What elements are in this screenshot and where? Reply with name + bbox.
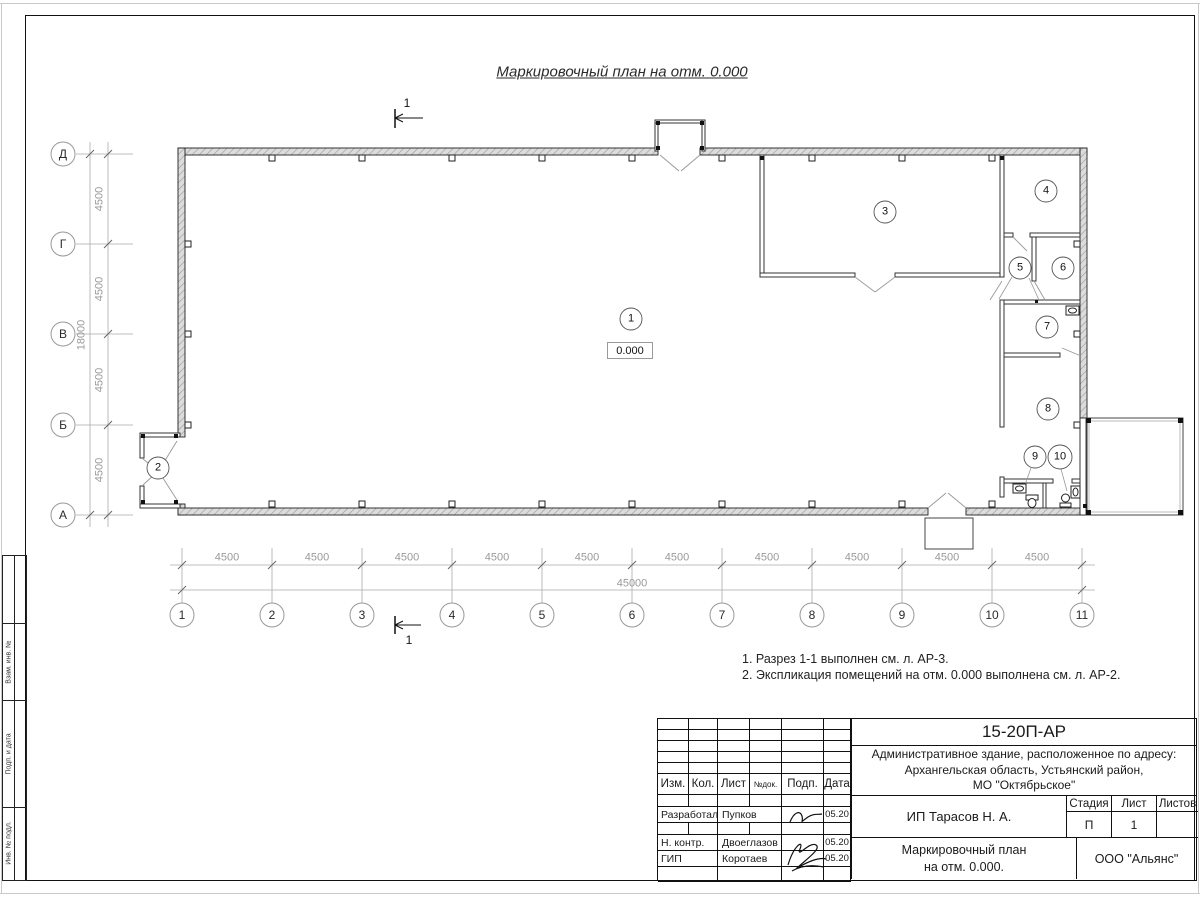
col-ndok: №док. <box>750 774 782 795</box>
dim-label: 4500 <box>1025 553 1049 564</box>
project-name: Административное здание, расположенное п… <box>851 746 1196 796</box>
margin-attribute-column: Взам. инв. № Подп. и дата Инв. № подл. <box>2 555 27 881</box>
room-tag: 1 <box>628 314 634 325</box>
dim-label: 4500 <box>215 553 239 564</box>
axis-label: 4 <box>449 609 456 621</box>
column-marks <box>185 155 1080 507</box>
margin-label: Инв. № подл. <box>6 821 13 865</box>
note-line: 1. Разрез 1-1 выполнен см. л. АР-3. <box>742 652 949 666</box>
dim-label: 4500 <box>665 553 689 564</box>
axis-label: 7 <box>719 609 726 621</box>
sheets-header: Листов <box>1156 796 1198 812</box>
axis-label: А <box>59 509 67 521</box>
stage-value: П <box>1066 812 1111 838</box>
sig-role: Разработал <box>658 807 718 823</box>
col-podp: Подп. <box>782 774 824 795</box>
axis-label: 1 <box>179 609 186 621</box>
axis-label: 9 <box>899 609 906 621</box>
axis-label: Б <box>59 419 67 431</box>
client-name: ИП Тарасов Н. А. <box>851 796 1066 838</box>
sig-name: Пупков <box>718 807 782 823</box>
margin-label: Подп. и дата <box>6 733 13 774</box>
axis-label: 5 <box>539 609 546 621</box>
drawing-title: Маркировочный план на отм. 0.000 <box>496 65 747 80</box>
room-tag: 6 <box>1060 263 1066 274</box>
project-line: МО "Октябрьское" <box>973 778 1075 794</box>
note-line: 2. Экспликация помещений на отм. 0.000 в… <box>742 668 1120 682</box>
sheets-value <box>1156 812 1198 838</box>
margin-label: Взам. инв. № <box>6 640 13 683</box>
project-line: Архангельская область, Устьянский район, <box>905 763 1144 779</box>
dim-label: 4500 <box>95 458 106 482</box>
ramp-and-porch <box>925 418 1183 549</box>
dim-label: 4500 <box>755 553 779 564</box>
dim-label: 4500 <box>935 553 959 564</box>
sheet-value: 1 <box>1111 812 1156 838</box>
sig-role: ГИП <box>658 851 718 867</box>
signature-scribble <box>784 806 828 830</box>
room-tag: 2 <box>155 463 161 474</box>
section-mark-label-top: 1 <box>404 97 411 109</box>
margin-cell <box>3 556 26 624</box>
sheet-title: Маркировочный план на отм. 0.000. <box>851 838 1076 879</box>
col-izm: Изм. <box>658 774 689 795</box>
axis-label: 10 <box>985 609 998 621</box>
title-block: Изм. Кол. Лист №док. Подп. Дата Разработ… <box>657 718 1197 881</box>
drawing-sheet: Маркировочный план на отм. 0.000 1 1 1 2… <box>0 0 1200 900</box>
dim-label: 4500 <box>95 187 106 211</box>
exterior-walls <box>178 148 1087 515</box>
sig-name: Коротаев <box>718 851 782 867</box>
col-data: Дата <box>824 774 851 795</box>
dim-total-label: 18000 <box>77 320 88 351</box>
sig-date: 05.20 <box>824 807 851 823</box>
sheet-header: Лист <box>1111 796 1156 812</box>
axis-label: 11 <box>1076 609 1088 621</box>
dim-label: 4500 <box>305 553 329 564</box>
signature-scribble <box>780 835 832 875</box>
sig-role: Н. контр. <box>658 835 718 851</box>
doc-number: 15-20П-АР <box>851 719 1196 746</box>
project-line: Административное здание, расположенное п… <box>872 747 1177 763</box>
dim-label: 4500 <box>845 553 869 564</box>
room-tag: 4 <box>1043 186 1049 197</box>
dim-total-label: 45000 <box>617 579 648 590</box>
dim-label: 4500 <box>95 368 106 392</box>
stage-header: Стадия <box>1066 796 1111 812</box>
dim-label: 4500 <box>395 553 419 564</box>
axis-label: В <box>59 328 67 340</box>
room-bubbles <box>147 180 1074 479</box>
dim-label: 4500 <box>95 277 106 301</box>
section-mark-label-bottom: 1 <box>406 634 413 646</box>
vestibule-walls <box>140 120 705 508</box>
dimension-lines <box>76 142 1095 603</box>
room-tag: 5 <box>1017 263 1023 274</box>
dim-label: 4500 <box>485 553 509 564</box>
axis-label: Г <box>60 238 67 250</box>
room-tag: 3 <box>882 207 888 218</box>
dimension-ticks <box>86 150 1086 594</box>
axis-label: 2 <box>269 609 276 621</box>
axis-label: 3 <box>359 609 366 621</box>
room-tag: 9 <box>1032 452 1038 463</box>
door-swings <box>143 155 1081 508</box>
room-tag: 8 <box>1045 404 1051 415</box>
sheet-title-line: Маркировочный план <box>902 842 1027 858</box>
col-kol: Кол. <box>689 774 718 795</box>
room-tag: 10 <box>1054 452 1066 463</box>
sig-name: Двоеглазов <box>718 835 782 851</box>
sheet-title-line: на отм. 0.000. <box>924 859 1004 875</box>
col-list: Лист <box>718 774 750 795</box>
axis-label: 6 <box>629 609 636 621</box>
axis-label: Д <box>59 148 67 160</box>
dim-label: 4500 <box>575 553 599 564</box>
company-name: ООО "Альянс" <box>1076 838 1196 879</box>
axis-label: 8 <box>809 609 816 621</box>
room-tag: 7 <box>1044 322 1050 333</box>
elevation-mark: 0.000 <box>607 342 653 359</box>
